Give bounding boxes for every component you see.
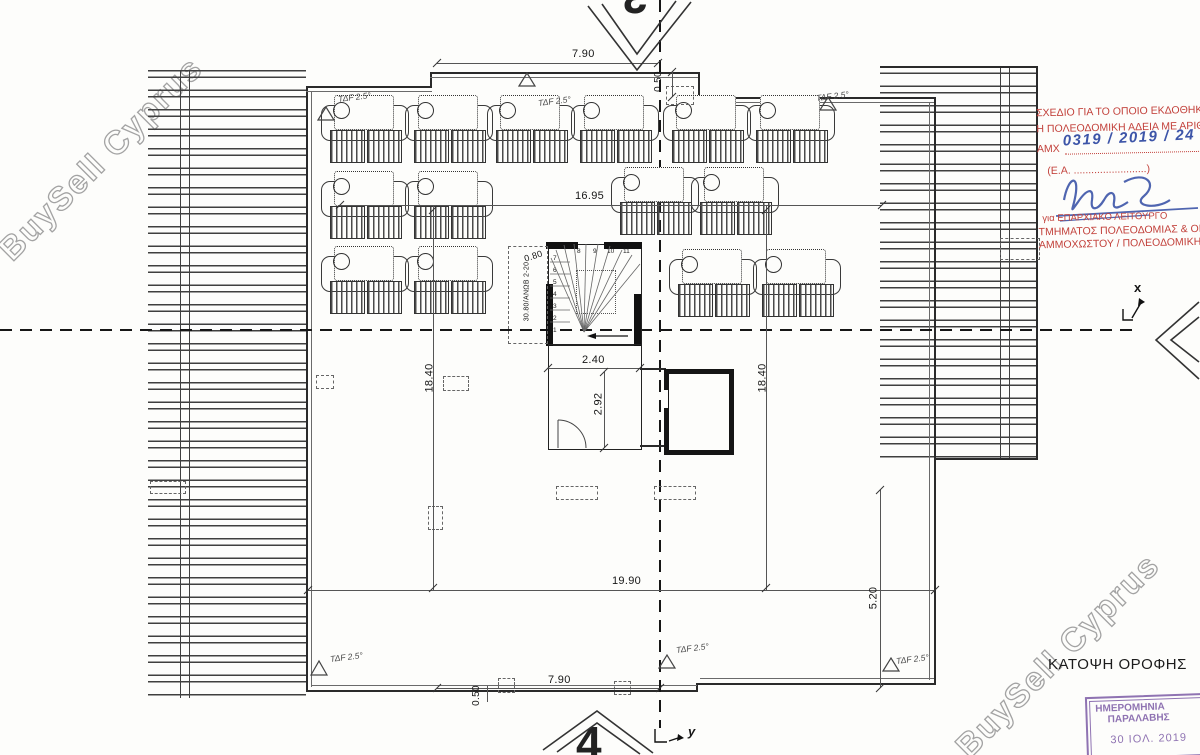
lounge-table-seat: [333, 102, 350, 119]
roof-drain: [443, 376, 469, 391]
parapet-line: [311, 91, 312, 687]
section-marker-top: 3: [622, 0, 648, 24]
dim-left-height: 18.40: [424, 363, 436, 392]
stair-step-number: 6: [553, 267, 557, 274]
dim-line: [340, 205, 882, 206]
dim-stair-width: 2.40: [582, 354, 605, 366]
wall-segment: [640, 445, 666, 447]
right-pergola-louvers: [880, 66, 1036, 458]
pergola-rail: [1000, 66, 1001, 458]
lounge-chair: [756, 130, 791, 163]
wall-segment: [696, 683, 936, 685]
stair-wall: [546, 242, 578, 249]
lounge-table-seat: [499, 102, 516, 119]
stair-landing: [576, 270, 616, 314]
roof-drain: [556, 486, 598, 500]
roof-drain: [654, 486, 696, 500]
wall-segment: [306, 86, 432, 88]
lounge-chair: [580, 130, 615, 163]
lounge-set: [670, 95, 746, 163]
pergola-rail: [1009, 66, 1010, 458]
lounge-chair: [533, 130, 568, 163]
dim-lower-width: 19.90: [612, 575, 641, 587]
dim-bottom-step: 0.50: [471, 685, 482, 706]
stair-step-number: 9: [593, 248, 597, 255]
lounge-chair: [617, 130, 652, 163]
stair-step-number: 4: [553, 291, 557, 298]
stair-step-number: 10: [607, 248, 614, 255]
lounge-chair: [678, 284, 713, 317]
axis-y-arrow: [655, 729, 684, 742]
lounge-chair: [414, 130, 449, 163]
lounge-set: [328, 246, 404, 314]
stair-step-number: 7: [553, 255, 557, 262]
dim-bottom-width: 7.90: [548, 674, 571, 686]
lounge-table-seat: [703, 174, 720, 191]
lounge-table-seat: [333, 253, 350, 270]
stair-step-number: 3: [553, 303, 557, 310]
lounge-chair: [451, 206, 486, 239]
lounge-set: [412, 246, 488, 314]
dim-line: [437, 63, 658, 64]
stair-step-number: 1: [553, 327, 557, 334]
lounge-table-seat: [583, 102, 600, 119]
pergola-rail: [180, 70, 181, 698]
lounge-set: [412, 95, 488, 163]
lounge-table-seat: [765, 256, 782, 273]
lounge-chair: [330, 130, 365, 163]
dim-line: [880, 490, 881, 688]
slope-note: ΤΔF 2.5°: [896, 652, 930, 666]
dim-line: [672, 72, 673, 97]
floor-plan-canvas: BuySell Cyprus BuySell Cyprus x y 3 4: [0, 0, 1200, 755]
lounge-set: [760, 249, 836, 317]
pergola-frame: [880, 66, 1038, 68]
section-arrow-right: [1156, 302, 1199, 379]
lounge-chair: [451, 130, 486, 163]
lounge-set: [754, 95, 830, 163]
wall-segment: [640, 368, 666, 370]
lounge-chair: [414, 281, 449, 314]
axis-y-label: y: [688, 724, 696, 739]
lounge-chair: [367, 130, 402, 163]
lounge-table-seat: [333, 178, 350, 195]
parapet-line: [700, 678, 934, 679]
wall-segment: [934, 97, 936, 685]
roof-drain: [428, 506, 443, 530]
lounge-chair: [414, 206, 449, 239]
lounge-set: [676, 249, 752, 317]
stair-wall: [634, 294, 641, 346]
stair-step-number: 11: [623, 248, 630, 255]
pergola-rail: [189, 70, 190, 698]
lounge-chair: [330, 206, 365, 239]
elevator-shaft: [664, 369, 734, 455]
stair-note: 30.80/ΑΝΩΒ 2-20: [524, 257, 531, 327]
wall-segment: [306, 86, 308, 692]
receipt-stamp-date: 30 ΙΟΛ. 2019: [1110, 732, 1187, 747]
dim-line: [308, 590, 935, 591]
lounge-chair: [715, 284, 750, 317]
parapet-line: [929, 102, 930, 680]
plan-title: ΚΑΤΟΨΗ ΟΡΟΦΗΣ: [1048, 656, 1187, 673]
dim-line: [433, 205, 434, 590]
slope-note: ΤΔF 2.5°: [676, 641, 710, 655]
lounge-chair: [657, 202, 692, 235]
dim-right-height: 18.40: [757, 363, 769, 392]
lounge-table-seat: [759, 102, 776, 119]
stair-step-number: 8: [577, 248, 581, 255]
axis-x-arrow: [1123, 298, 1145, 320]
dim-top-width: 7.90: [572, 48, 595, 60]
dim-line: [548, 368, 640, 369]
lounge-table-seat: [417, 102, 434, 119]
section-marker-bottom: 4: [576, 716, 602, 755]
roof-drain: [150, 481, 186, 494]
shaft-door-opening: [662, 390, 668, 408]
lounge-table-seat: [417, 178, 434, 195]
stair-step-number: 5: [553, 279, 557, 286]
lounge-table-seat: [417, 253, 434, 270]
lounge-chair: [709, 130, 744, 163]
slope-note: ΤΔF 2.5°: [816, 89, 850, 103]
roof-drain: [316, 375, 334, 389]
pergola-frame: [936, 458, 1038, 460]
wall-segment: [430, 72, 432, 88]
lounge-chair: [799, 284, 834, 317]
dim-top-step: 0.50: [653, 71, 664, 92]
lounge-chair: [700, 202, 735, 235]
lounge-set: [618, 167, 694, 235]
lounge-chair: [762, 284, 797, 317]
dim-upper-width: 16.95: [575, 190, 604, 202]
lounge-chair: [620, 202, 655, 235]
lounge-chair: [496, 130, 531, 163]
dashed-axis-y: [659, 0, 661, 728]
approval-stamp-dept2: ΑΜΜΟΧΩΣΤΟΥ / ΠΟΛΕΟΔΟΜΙΚΗ ΑΡ: [1039, 237, 1200, 251]
receipt-stamp: ΗΜΕΡΟΜΗΝΙΑ ΠΑΡΑΛΑΒΗΣ 30 ΙΟΛ. 2019: [1085, 693, 1200, 755]
approval-stamp-ref-prefix: ΑΜΧ: [1037, 144, 1060, 155]
approval-stamp: ΣΧΕΔΙΟ ΓΙΑ ΤΟ ΟΠΟΙΟ ΕΚΔΟΘΗΚ Η ΠΟΛΕΟΔΟΜΙΚ…: [1036, 104, 1200, 109]
lounge-set: [578, 95, 654, 163]
roof-drain: [666, 86, 694, 105]
dim-line: [487, 686, 488, 702]
lounge-table-seat: [681, 256, 698, 273]
dim-right-lower-height: 5.20: [867, 587, 879, 610]
lounge-chair: [330, 281, 365, 314]
receipt-stamp-line2: ΠΑΡΑΛΑΒΗΣ: [1108, 712, 1170, 725]
lounge-chair: [367, 206, 402, 239]
lounge-set: [328, 95, 404, 163]
lounge-chair: [793, 130, 828, 163]
lounge-table-seat: [623, 174, 640, 191]
lounge-set: [698, 167, 774, 235]
approval-stamp-ea: (Ε.Α. .........................): [1047, 164, 1150, 177]
left-pergola-louvers: [148, 70, 306, 698]
approval-stamp-for-line: για ΕΠΑΡΧΙΑΚΟ ΛΕΙΤΟΥΡΓΟ: [1042, 212, 1167, 224]
stair-step-number: 2: [553, 315, 557, 322]
lounge-chair: [367, 281, 402, 314]
approval-stamp-line: ΣΧΕΔΙΟ ΓΙΑ ΤΟ ΟΠΟΙΟ ΕΚΔΟΘΗΚ: [1036, 105, 1200, 119]
axis-x-label: x: [1134, 280, 1142, 295]
dim-lobby-depth: 2.92: [592, 393, 604, 416]
roof-drain: [498, 678, 515, 693]
lounge-chair: [451, 281, 486, 314]
roof-drain: [1000, 238, 1040, 260]
dim-line: [766, 205, 767, 590]
slope-note: ΤΔF 2.5°: [330, 650, 364, 664]
lounge-chair: [672, 130, 707, 163]
